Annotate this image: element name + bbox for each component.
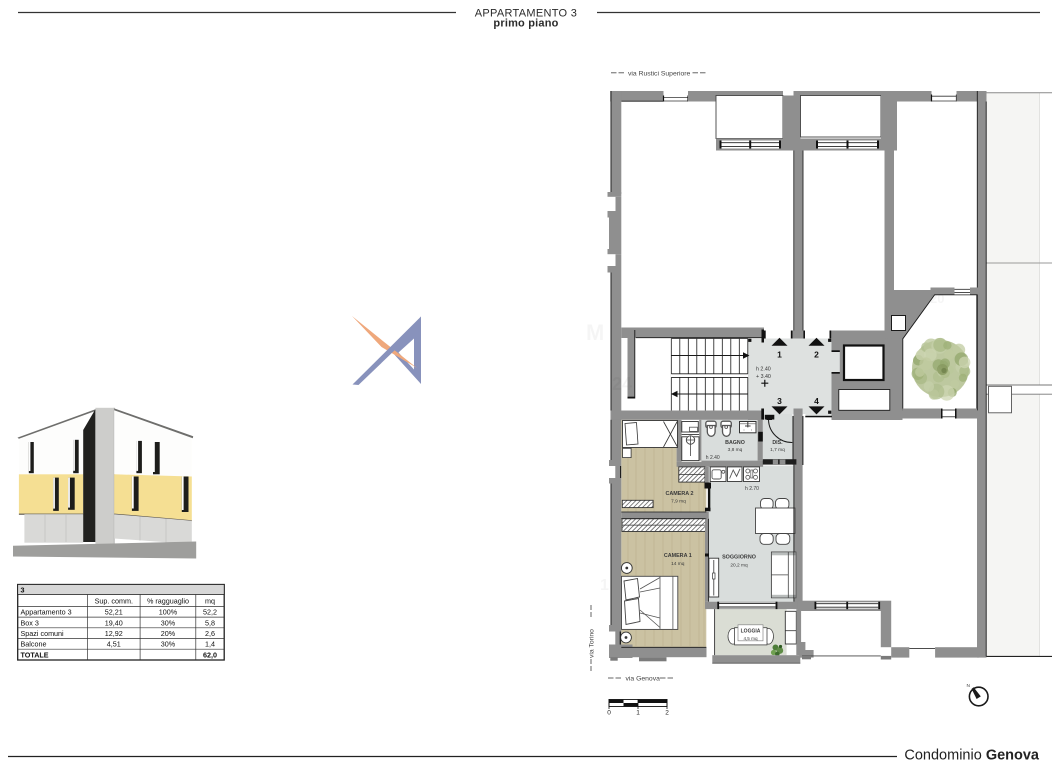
svg-text:via Genova: via Genova bbox=[626, 676, 661, 683]
svg-text:Sup. comm.: Sup. comm. bbox=[95, 596, 133, 605]
svg-text:CAMERA 2: CAMERA 2 bbox=[666, 491, 694, 497]
svg-text:1: 1 bbox=[777, 350, 782, 360]
svg-text:1: 1 bbox=[636, 710, 640, 717]
svg-text:TOTALE: TOTALE bbox=[21, 651, 49, 660]
svg-text:1,4: 1,4 bbox=[205, 640, 215, 649]
svg-text:Balcone: Balcone bbox=[21, 640, 47, 649]
svg-text:mq: mq bbox=[205, 596, 215, 605]
svg-text:LOGGIA: LOGGIA bbox=[741, 628, 761, 634]
svg-text:CAMERA 1: CAMERA 1 bbox=[664, 553, 692, 559]
svg-text:1: 1 bbox=[600, 577, 609, 594]
svg-text:0: 0 bbox=[607, 710, 611, 717]
svg-text:3,8 mq: 3,8 mq bbox=[728, 447, 743, 453]
svg-text:+ 3.40: + 3.40 bbox=[756, 374, 771, 380]
svg-text:DIS.: DIS. bbox=[772, 440, 783, 446]
svg-text:20: 20 bbox=[930, 291, 944, 306]
svg-text:20,2 mq: 20,2 mq bbox=[730, 563, 748, 569]
svg-text:100%: 100% bbox=[159, 608, 178, 617]
svg-text:62,0: 62,0 bbox=[203, 651, 217, 660]
svg-text:52,21: 52,21 bbox=[105, 608, 123, 617]
svg-text:19,40: 19,40 bbox=[105, 618, 123, 627]
svg-text:2: 2 bbox=[814, 350, 819, 360]
svg-text:52,2: 52,2 bbox=[203, 608, 217, 617]
svg-text:12,92: 12,92 bbox=[105, 629, 123, 638]
svg-text:via Torino: via Torino bbox=[589, 629, 596, 658]
svg-text:5,8: 5,8 bbox=[205, 618, 215, 627]
svg-text:4,51: 4,51 bbox=[107, 640, 121, 649]
svg-text:24: 24 bbox=[612, 374, 632, 394]
svg-text:M: M bbox=[586, 320, 604, 345]
svg-text:3: 3 bbox=[777, 396, 782, 406]
svg-text:N: N bbox=[967, 683, 971, 689]
svg-text:% ragguaglio: % ragguaglio bbox=[147, 596, 189, 605]
svg-text:h 2.40: h 2.40 bbox=[706, 455, 720, 461]
svg-text:h 2.40: h 2.40 bbox=[756, 367, 771, 373]
svg-text:BAGNO: BAGNO bbox=[725, 440, 745, 446]
svg-text:14 mq: 14 mq bbox=[671, 561, 685, 567]
svg-text:SOGGIORNO: SOGGIORNO bbox=[722, 555, 756, 561]
svg-text:7,9 mq: 7,9 mq bbox=[671, 499, 686, 505]
svg-text:2,6: 2,6 bbox=[205, 629, 215, 638]
svg-text:3: 3 bbox=[21, 585, 25, 594]
svg-text:h 2.70: h 2.70 bbox=[745, 486, 759, 492]
svg-text:via Rustici Superiore: via Rustici Superiore bbox=[628, 71, 691, 78]
svg-text:30%: 30% bbox=[161, 618, 176, 627]
svg-text:4,5 mq: 4,5 mq bbox=[743, 636, 757, 641]
svg-text:primo piano: primo piano bbox=[493, 18, 558, 30]
svg-text:30%: 30% bbox=[161, 640, 176, 649]
svg-text:4: 4 bbox=[814, 396, 819, 406]
svg-text:Appartamento 3: Appartamento 3 bbox=[21, 608, 72, 617]
svg-text:20%: 20% bbox=[161, 629, 176, 638]
svg-text:Condominio Genova: Condominio Genova bbox=[904, 748, 1040, 764]
svg-text:1,7 mq: 1,7 mq bbox=[770, 447, 785, 453]
svg-text:Spazi comuni: Spazi comuni bbox=[21, 629, 65, 638]
svg-text:Box 3: Box 3 bbox=[21, 618, 39, 627]
svg-text:2: 2 bbox=[665, 710, 669, 717]
